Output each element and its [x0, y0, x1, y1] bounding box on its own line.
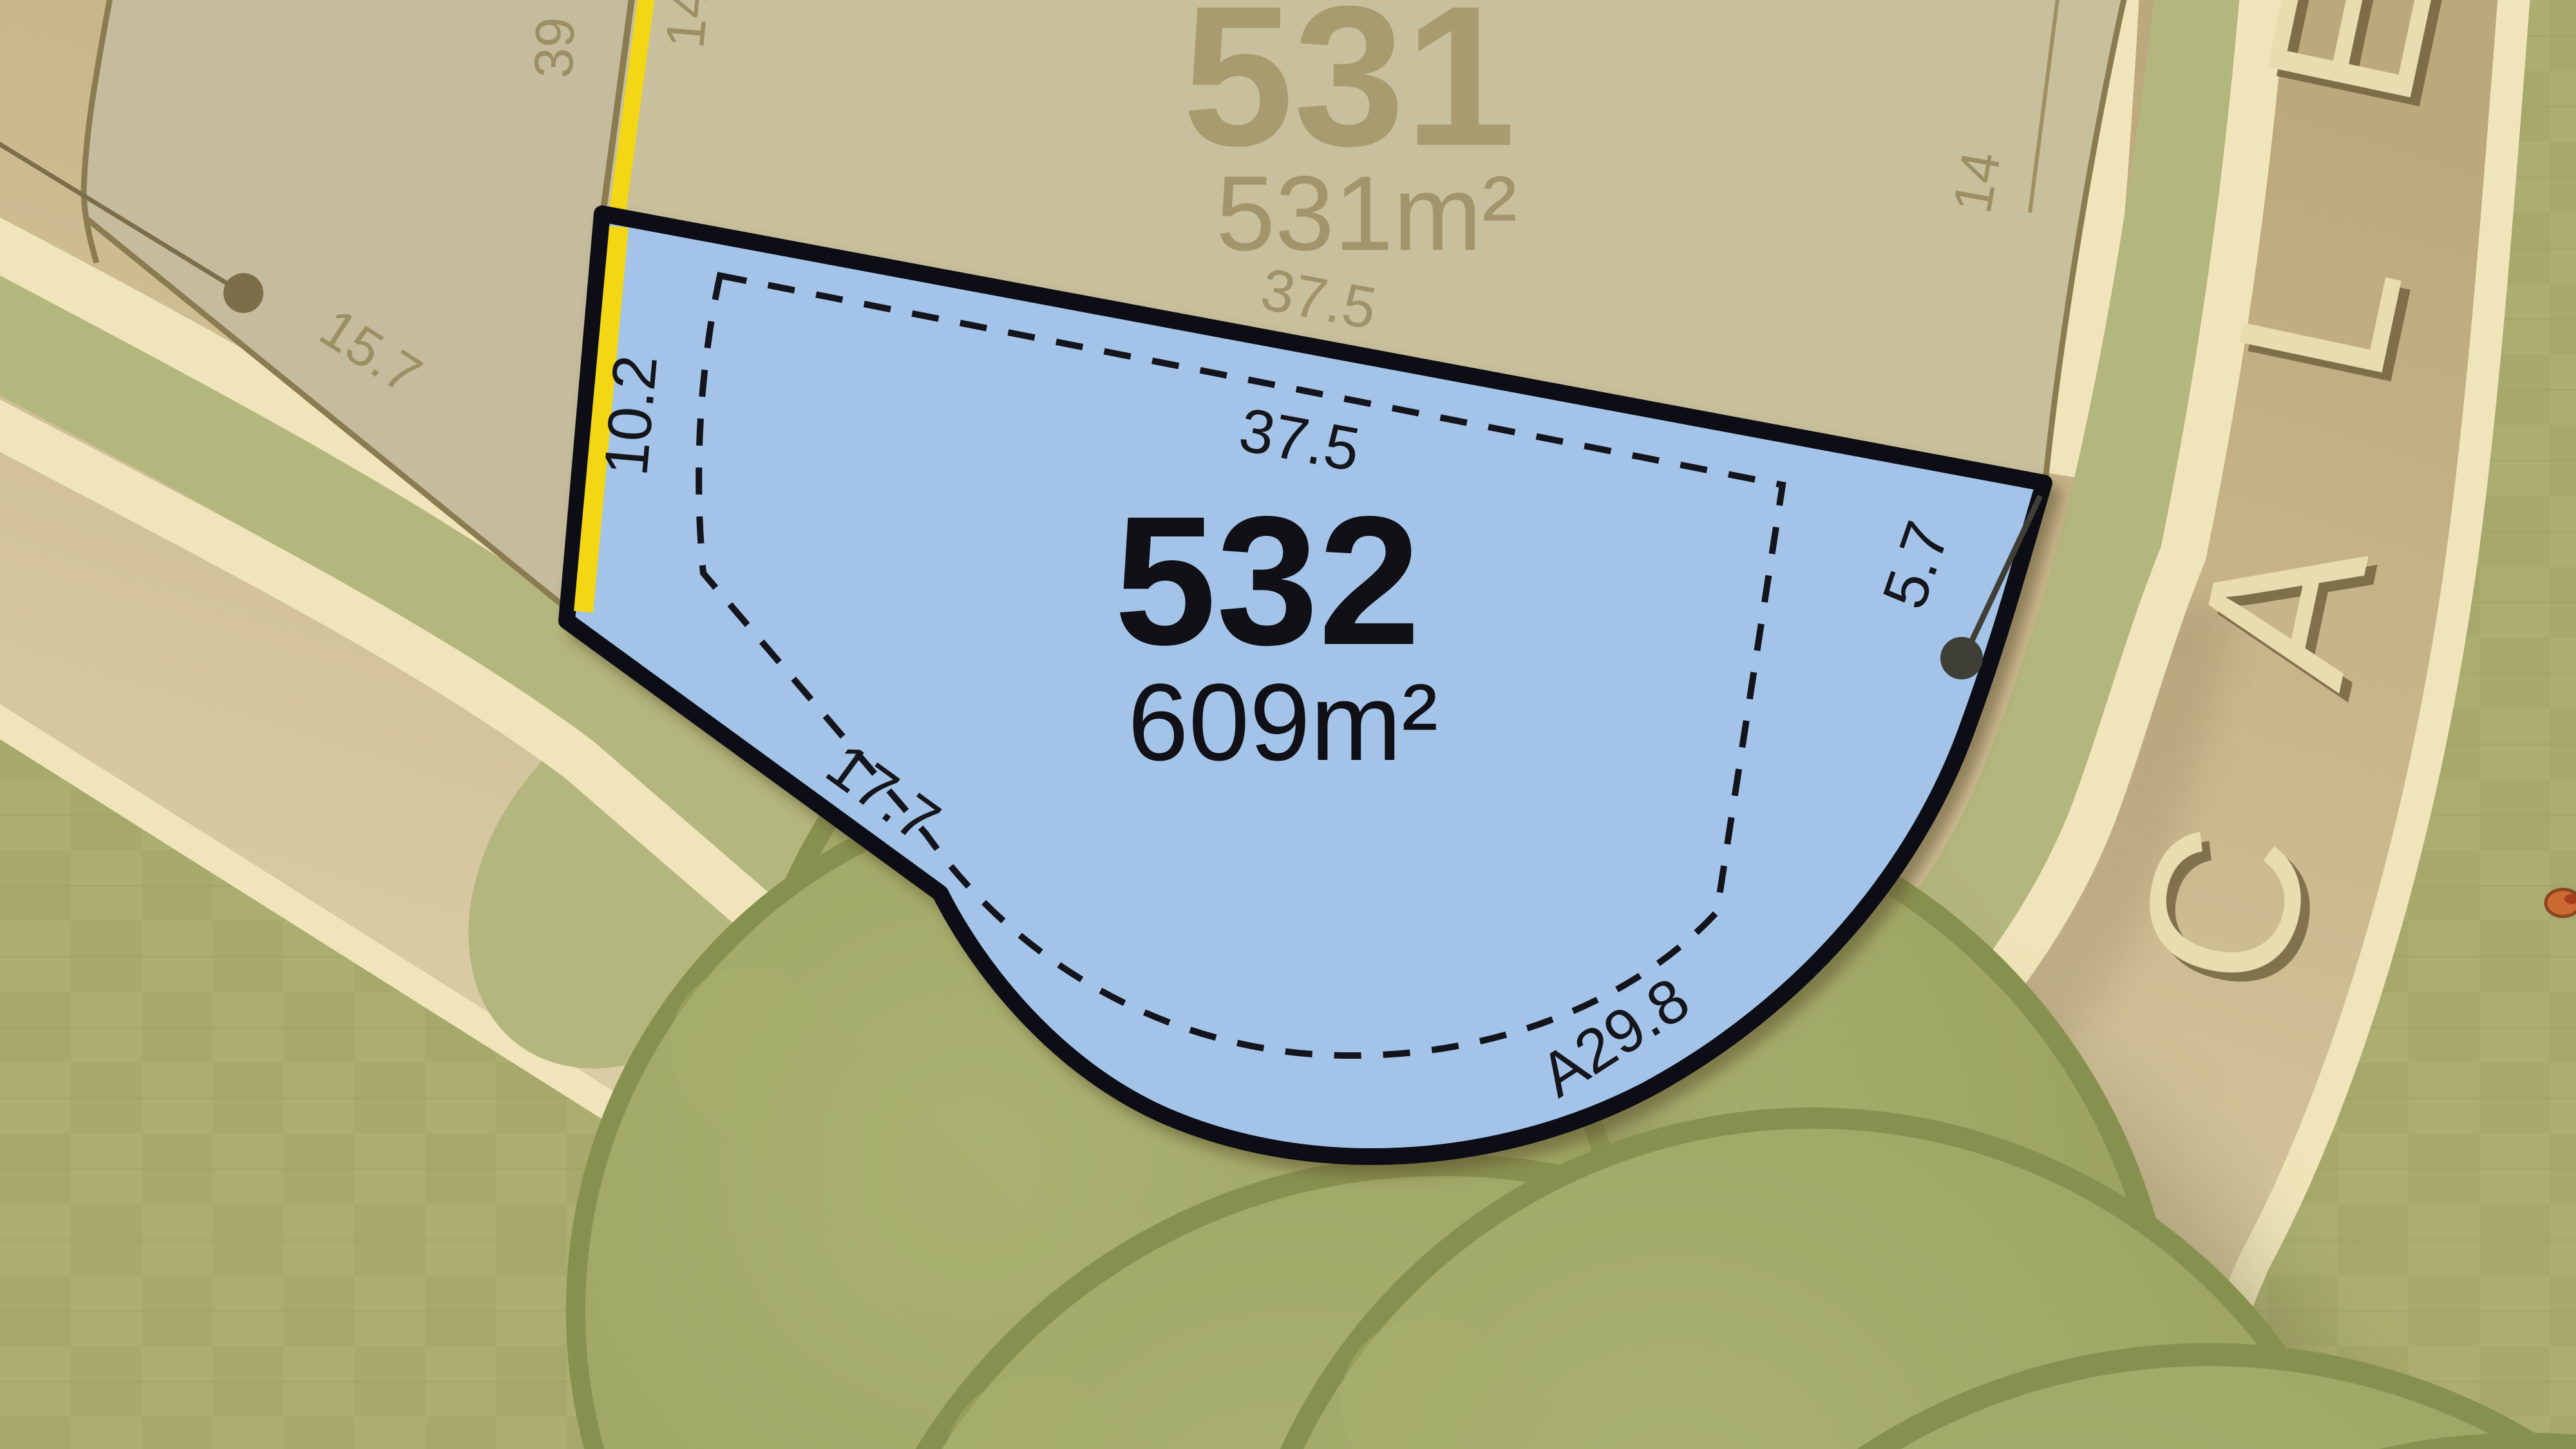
dim-532-left: 10.2 — [591, 352, 670, 478]
survey-dot-west — [223, 273, 263, 313]
map-canvas: 531 531m² 37.5 37.5 532 609m² 10.2 17.7 … — [0, 0, 2576, 1449]
lot-532-area: 609m² — [1128, 661, 1438, 784]
subdivision-map: 531 531m² 37.5 37.5 532 609m² 10.2 17.7 … — [0, 0, 2576, 1449]
lot-531-area: 531m² — [1216, 154, 1517, 272]
garden-marker — [2546, 889, 2576, 916]
lot-532-number: 532 — [1114, 478, 1421, 683]
survey-dot-east — [1940, 637, 1983, 679]
dim-531-right: 14 — [1942, 147, 2012, 218]
dim-531-left-boundary: 39 — [523, 16, 586, 79]
dim-531-top-boundary: 14 — [654, 0, 721, 51]
